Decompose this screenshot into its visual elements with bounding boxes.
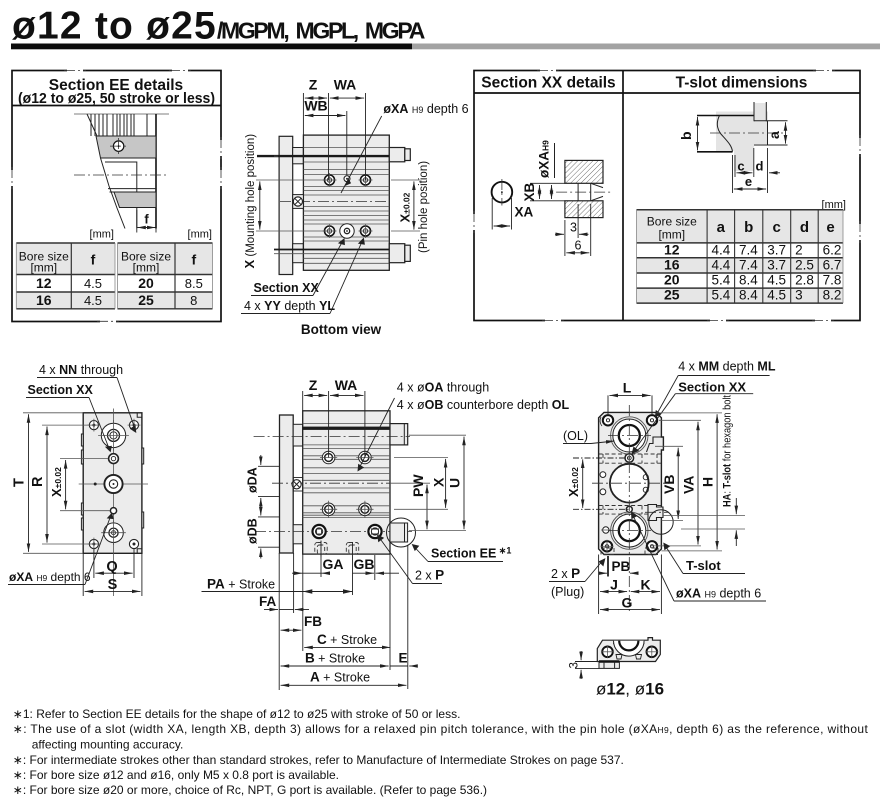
svg-text:(Pin hole position): (Pin hole position) — [418, 161, 430, 253]
svg-text:∗: For bore size ø20 or more,: ∗: For bore size ø20 or more, choice of … — [13, 783, 487, 797]
svg-text:4.5: 4.5 — [84, 276, 102, 291]
svg-text:2.5: 2.5 — [795, 258, 814, 273]
svg-text:4 x MM depth ML: 4 x MM depth ML — [678, 360, 776, 374]
svg-text:3.7: 3.7 — [767, 242, 786, 257]
svg-text:d: d — [800, 219, 809, 236]
svg-text:VB: VB — [661, 475, 677, 494]
svg-text:2 x P: 2 x P — [551, 566, 580, 581]
svg-text:20: 20 — [664, 272, 680, 288]
svg-text:R: R — [30, 476, 46, 487]
svg-text:Z: Z — [309, 377, 318, 393]
svg-text:A + Stroke: A + Stroke — [310, 670, 370, 685]
svg-text:U: U — [447, 478, 463, 488]
svg-text:8: 8 — [190, 293, 197, 308]
svg-text:8.2: 8.2 — [823, 288, 842, 303]
svg-text:[mm]: [mm] — [188, 229, 212, 241]
svg-text:PB: PB — [612, 559, 631, 574]
svg-text:øXA H9 depth 6: øXA H9 depth 6 — [9, 570, 91, 584]
svg-text:T: T — [12, 478, 28, 487]
svg-text:Section XX details: Section XX details — [481, 75, 615, 92]
svg-text:7.4: 7.4 — [739, 258, 758, 273]
svg-text:a: a — [717, 219, 726, 236]
svg-text:[mm]: [mm] — [133, 261, 160, 275]
svg-text:G: G — [622, 595, 633, 611]
svg-text:3: 3 — [570, 221, 577, 235]
svg-text:20: 20 — [138, 275, 154, 291]
svg-text:[mm]: [mm] — [90, 229, 114, 241]
svg-text:PA + Stroke: PA + Stroke — [207, 577, 275, 592]
svg-text:affecting mounting accuracy.: affecting mounting accuracy. — [32, 738, 184, 752]
svg-text:e: e — [745, 174, 752, 189]
svg-text:Z: Z — [309, 77, 318, 93]
svg-text:T-slot dimensions: T-slot dimensions — [676, 75, 808, 92]
svg-text:8.5: 8.5 — [185, 276, 203, 291]
svg-text:b: b — [744, 219, 753, 236]
svg-text:6.2: 6.2 — [823, 242, 842, 257]
svg-text:WB: WB — [304, 98, 327, 114]
svg-text:12: 12 — [664, 241, 680, 257]
svg-text:f: f — [91, 252, 96, 268]
svg-text:Section XX: Section XX — [678, 380, 746, 395]
svg-text:X: X — [431, 477, 447, 487]
svg-text:XB: XB — [522, 182, 537, 201]
svg-text:6.7: 6.7 — [823, 258, 842, 273]
svg-text:Bottom view: Bottom view — [301, 322, 382, 337]
svg-text:5.4: 5.4 — [712, 288, 731, 303]
svg-text:(ø12 to ø25, 50 stroke or less: (ø12 to ø25, 50 stroke or less) — [18, 90, 215, 107]
svg-text:4.5: 4.5 — [767, 288, 786, 303]
svg-text:WA: WA — [335, 377, 358, 393]
svg-text:c: c — [773, 219, 781, 236]
svg-text:8.4: 8.4 — [739, 273, 758, 288]
svg-text:e: e — [826, 219, 834, 236]
svg-text:(OL): (OL) — [563, 429, 588, 443]
svg-text:Section XX: Section XX — [28, 383, 94, 397]
svg-text:Section XX: Section XX — [254, 281, 320, 295]
svg-text:7.8: 7.8 — [823, 273, 842, 288]
svg-text:∗: For intermediate strokes ot: ∗: For intermediate strokes other than s… — [13, 753, 624, 767]
svg-text:a: a — [766, 131, 782, 139]
svg-text:GA: GA — [323, 556, 344, 572]
svg-text:f: f — [191, 252, 196, 268]
svg-text:2: 2 — [795, 242, 803, 257]
svg-text:3: 3 — [569, 662, 581, 668]
svg-text:6: 6 — [575, 239, 582, 253]
svg-text:25: 25 — [664, 287, 680, 303]
svg-text:C + Stroke: C + Stroke — [317, 632, 377, 647]
svg-text:øDB: øDB — [246, 518, 260, 544]
svg-text:øXA H9 depth 6: øXA H9 depth 6 — [383, 102, 468, 116]
svg-text:4.4: 4.4 — [712, 258, 731, 273]
svg-text:FA: FA — [259, 594, 277, 609]
svg-text:4 x øOA through: 4 x øOA through — [397, 381, 489, 395]
svg-text:ø12, ø16: ø12, ø16 — [596, 680, 664, 699]
svg-text:HA: T-slot for hexagon bolt: HA: T-slot for hexagon bolt — [722, 395, 734, 507]
svg-text:4.5: 4.5 — [84, 293, 102, 308]
svg-text:E: E — [399, 651, 408, 666]
svg-text:[mm]: [mm] — [30, 261, 57, 275]
svg-text:FB: FB — [304, 614, 322, 629]
svg-text:K: K — [640, 577, 650, 593]
svg-text:12: 12 — [36, 275, 52, 291]
svg-text:d: d — [756, 159, 764, 174]
svg-text:4 x NN through: 4 x NN through — [39, 363, 123, 377]
svg-text:øXA H9 depth 6: øXA H9 depth 6 — [676, 587, 761, 601]
svg-text:X (Mounting hole position): X (Mounting hole position) — [242, 134, 257, 269]
svg-text:16: 16 — [36, 292, 52, 308]
svg-text:T-slot: T-slot — [686, 558, 721, 573]
svg-text:PW: PW — [410, 474, 426, 497]
svg-text:WA: WA — [334, 77, 357, 93]
svg-text:3.7: 3.7 — [767, 258, 786, 273]
svg-text:øDA: øDA — [246, 467, 260, 493]
svg-text:L: L — [623, 380, 632, 396]
svg-text:VA: VA — [681, 476, 697, 494]
svg-text:H: H — [700, 477, 716, 487]
svg-text:16: 16 — [664, 257, 680, 273]
svg-text:Q: Q — [106, 559, 117, 575]
svg-text:4.5: 4.5 — [767, 273, 786, 288]
svg-text:∗: The use of a slot (width XA: ∗: The use of a slot (width XA, length X… — [13, 722, 869, 736]
svg-text:XA: XA — [515, 205, 534, 220]
svg-text:∗: For bore size ø12 and ø16,: ∗: For bore size ø12 and ø16, only M5 x … — [13, 768, 339, 782]
svg-text:2 x P: 2 x P — [415, 568, 444, 583]
svg-text:GB: GB — [354, 556, 375, 572]
svg-text:S: S — [108, 577, 118, 593]
svg-text:4.4: 4.4 — [712, 242, 731, 257]
svg-text:2.8: 2.8 — [795, 273, 814, 288]
svg-text:B + Stroke: B + Stroke — [305, 651, 365, 666]
svg-text:Bore size: Bore size — [647, 215, 697, 229]
svg-text:5.4: 5.4 — [712, 273, 731, 288]
svg-text:c: c — [737, 159, 744, 174]
svg-text:J: J — [610, 577, 618, 593]
svg-text:[mm]: [mm] — [658, 228, 685, 242]
svg-text:b: b — [678, 131, 694, 140]
svg-text:25: 25 — [138, 292, 154, 308]
svg-text:∗1: Refer to Section EE detail: ∗1: Refer to Section EE details for the … — [13, 707, 461, 721]
svg-text:4 x YY depth YL: 4 x YY depth YL — [244, 299, 335, 313]
svg-text:4 x øOB counterbore depth OL: 4 x øOB counterbore depth OL — [397, 398, 570, 412]
svg-text:f: f — [144, 212, 149, 227]
svg-text:3: 3 — [795, 288, 803, 303]
svg-text:(Plug): (Plug) — [551, 585, 584, 599]
svg-text:7.4: 7.4 — [739, 242, 758, 257]
svg-text:8.4: 8.4 — [739, 288, 758, 303]
